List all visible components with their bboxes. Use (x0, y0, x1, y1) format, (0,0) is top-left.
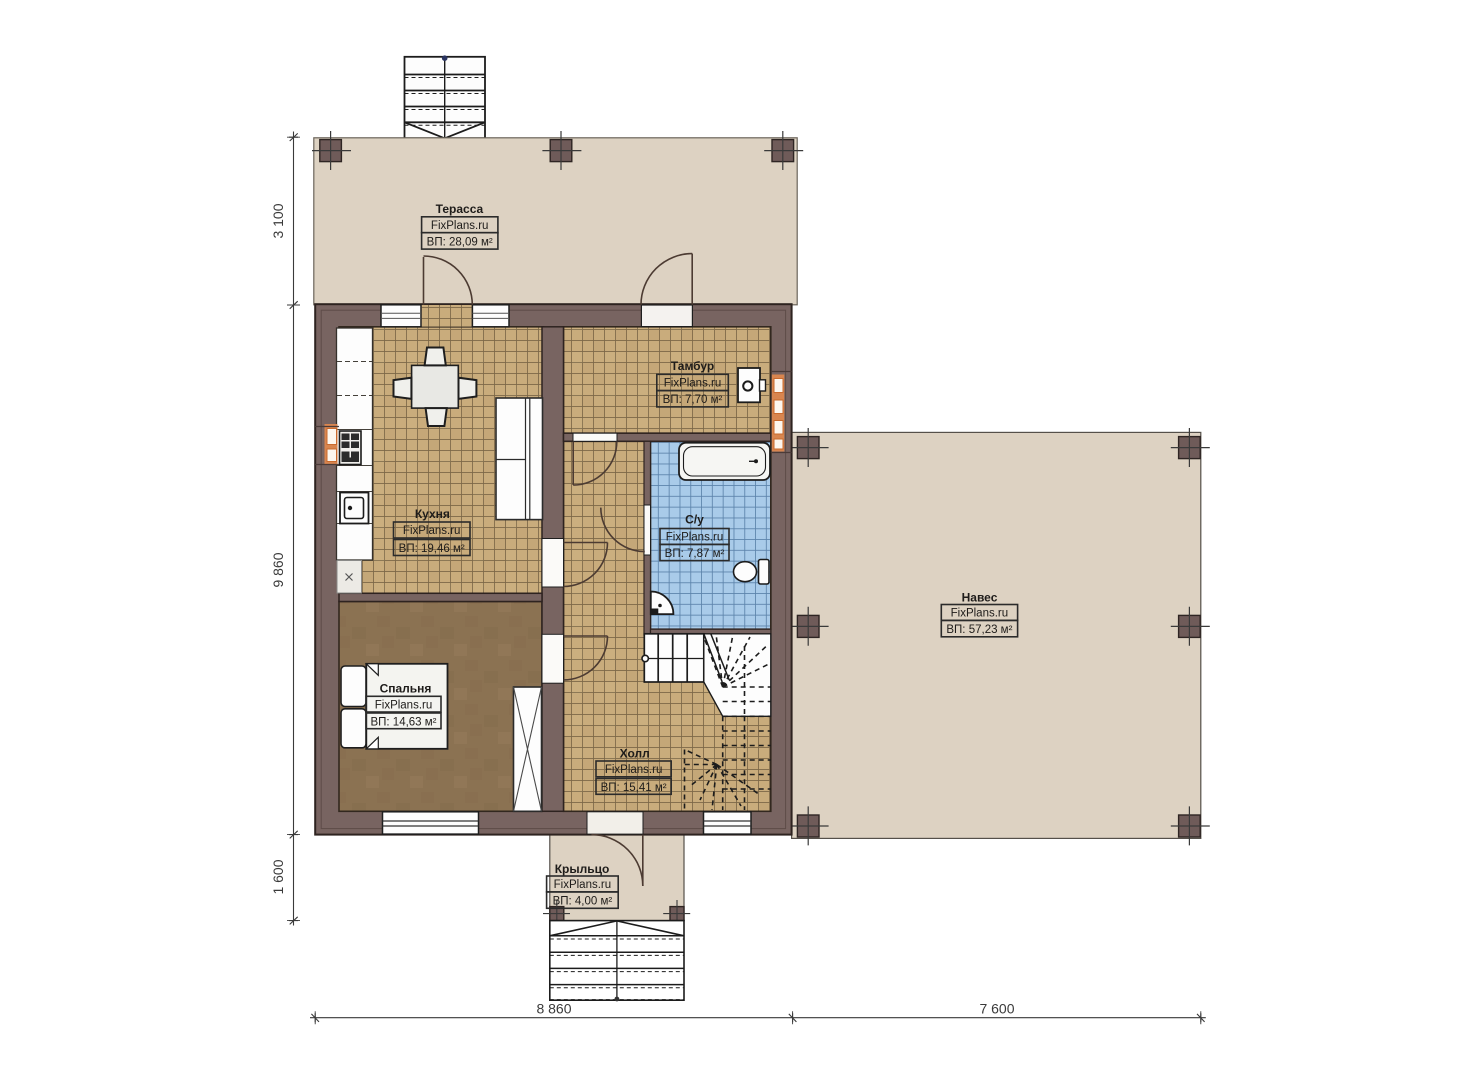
svg-text:ВП: 28,09 м²: ВП: 28,09 м² (427, 236, 493, 248)
svg-text:Тамбур: Тамбур (671, 359, 715, 373)
svg-text:FixPlans.ru: FixPlans.ru (375, 699, 433, 711)
svg-text:8 860: 8 860 (536, 1001, 571, 1017)
svg-text:ВП: 19,46 м²: ВП: 19,46 м² (399, 543, 465, 555)
svg-text:FixPlans.ru: FixPlans.ru (951, 608, 1009, 620)
svg-text:Навес: Навес (962, 591, 998, 605)
svg-text:3 100: 3 100 (270, 203, 286, 238)
svg-text:Крыльцо: Крыльцо (555, 862, 610, 876)
svg-text:FixPlans.ru: FixPlans.ru (605, 764, 663, 776)
svg-text:7 600: 7 600 (979, 1001, 1014, 1017)
svg-text:С/у: С/у (685, 513, 704, 527)
svg-text:9 860: 9 860 (270, 552, 286, 587)
svg-text:1 600: 1 600 (270, 859, 286, 894)
svg-text:ВП: 15,41 м²: ВП: 15,41 м² (601, 782, 667, 794)
svg-text:Терасса: Терасса (436, 202, 484, 216)
svg-text:FixPlans.ru: FixPlans.ru (554, 879, 612, 891)
svg-text:FixPlans.ru: FixPlans.ru (666, 532, 724, 544)
svg-text:Кухня: Кухня (415, 507, 450, 521)
svg-text:Спальня: Спальня (380, 682, 432, 696)
svg-text:FixPlans.ru: FixPlans.ru (664, 378, 722, 390)
svg-text:ВП: 57,23 м²: ВП: 57,23 м² (946, 624, 1012, 636)
svg-text:FixPlans.ru: FixPlans.ru (431, 220, 489, 232)
svg-text:ВП: 4,00 м²: ВП: 4,00 м² (553, 895, 613, 907)
svg-text:ВП: 7,70 м²: ВП: 7,70 м² (663, 394, 723, 406)
svg-text:Холл: Холл (620, 747, 650, 761)
svg-text:ВП: 14,63 м²: ВП: 14,63 м² (370, 716, 436, 728)
svg-text:FixPlans.ru: FixPlans.ru (403, 525, 461, 537)
svg-text:ВП: 7,87 м²: ВП: 7,87 м² (665, 548, 725, 560)
